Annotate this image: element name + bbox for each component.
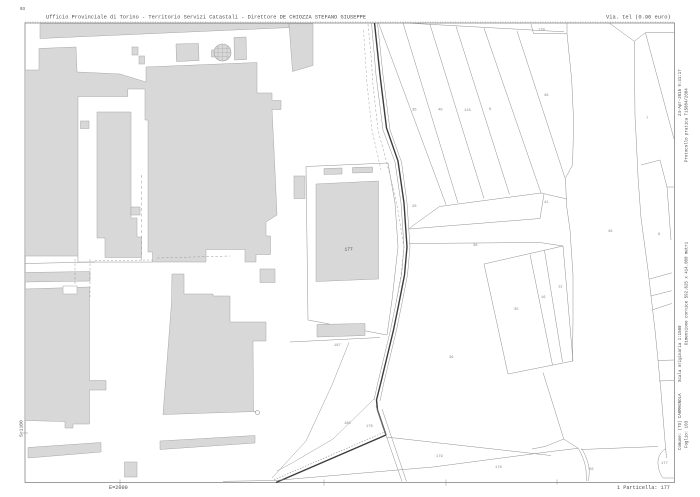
svg-text:12: 12 bbox=[558, 286, 563, 290]
svg-text:Comune: (TO) CARMAGNOLA: Comune: (TO) CARMAGNOLA bbox=[678, 393, 683, 450]
svg-text:03: 03 bbox=[20, 8, 26, 12]
svg-text:26: 26 bbox=[412, 205, 417, 209]
svg-text:40: 40 bbox=[438, 109, 443, 113]
svg-text:56: 56 bbox=[589, 468, 594, 472]
svg-text:46: 46 bbox=[608, 230, 613, 234]
svg-text:178: 178 bbox=[495, 466, 503, 470]
svg-text:E=2000: E=2000 bbox=[109, 485, 128, 491]
svg-text:1 Particella: 177: 1 Particella: 177 bbox=[617, 485, 670, 491]
svg-text:116: 116 bbox=[464, 109, 472, 113]
svg-text:S=1100: S=1100 bbox=[19, 420, 25, 437]
svg-text:41: 41 bbox=[544, 201, 549, 205]
svg-text:187: 187 bbox=[334, 344, 341, 348]
svg-text:Via. tel (0.90 euro): Via. tel (0.90 euro) bbox=[606, 15, 671, 21]
svg-text:177: 177 bbox=[661, 462, 668, 466]
svg-text:Scala originaria 1:1500: Scala originaria 1:1500 bbox=[678, 325, 683, 382]
svg-text:176: 176 bbox=[366, 425, 374, 429]
svg-text:24-Apr-2015 9:41:17: 24-Apr-2015 9:41:17 bbox=[679, 69, 683, 116]
svg-text:Foglio: 103: Foglio: 103 bbox=[685, 420, 690, 448]
svg-text:35: 35 bbox=[514, 308, 519, 312]
svg-text:39: 39 bbox=[449, 356, 454, 360]
svg-text:7: 7 bbox=[646, 117, 648, 121]
svg-text:Dimensione cornice 592.625 x: Dimensione cornice 592.625 x 414.000 met… bbox=[685, 241, 690, 345]
svg-text:36: 36 bbox=[412, 109, 417, 113]
svg-text:46: 46 bbox=[544, 94, 549, 98]
svg-text:Ufficio Provinciale di Torino: Ufficio Provinciale di Torino - Territor… bbox=[46, 15, 366, 21]
svg-text:38: 38 bbox=[473, 244, 478, 248]
svg-text:170: 170 bbox=[538, 29, 546, 33]
svg-text:Protocollo pratica T15084/200: Protocollo pratica T15084/2004 bbox=[685, 88, 690, 162]
svg-text:16: 16 bbox=[541, 296, 546, 300]
svg-text:179: 179 bbox=[436, 455, 444, 459]
svg-text:180: 180 bbox=[344, 422, 352, 426]
svg-text:177: 177 bbox=[345, 247, 354, 253]
